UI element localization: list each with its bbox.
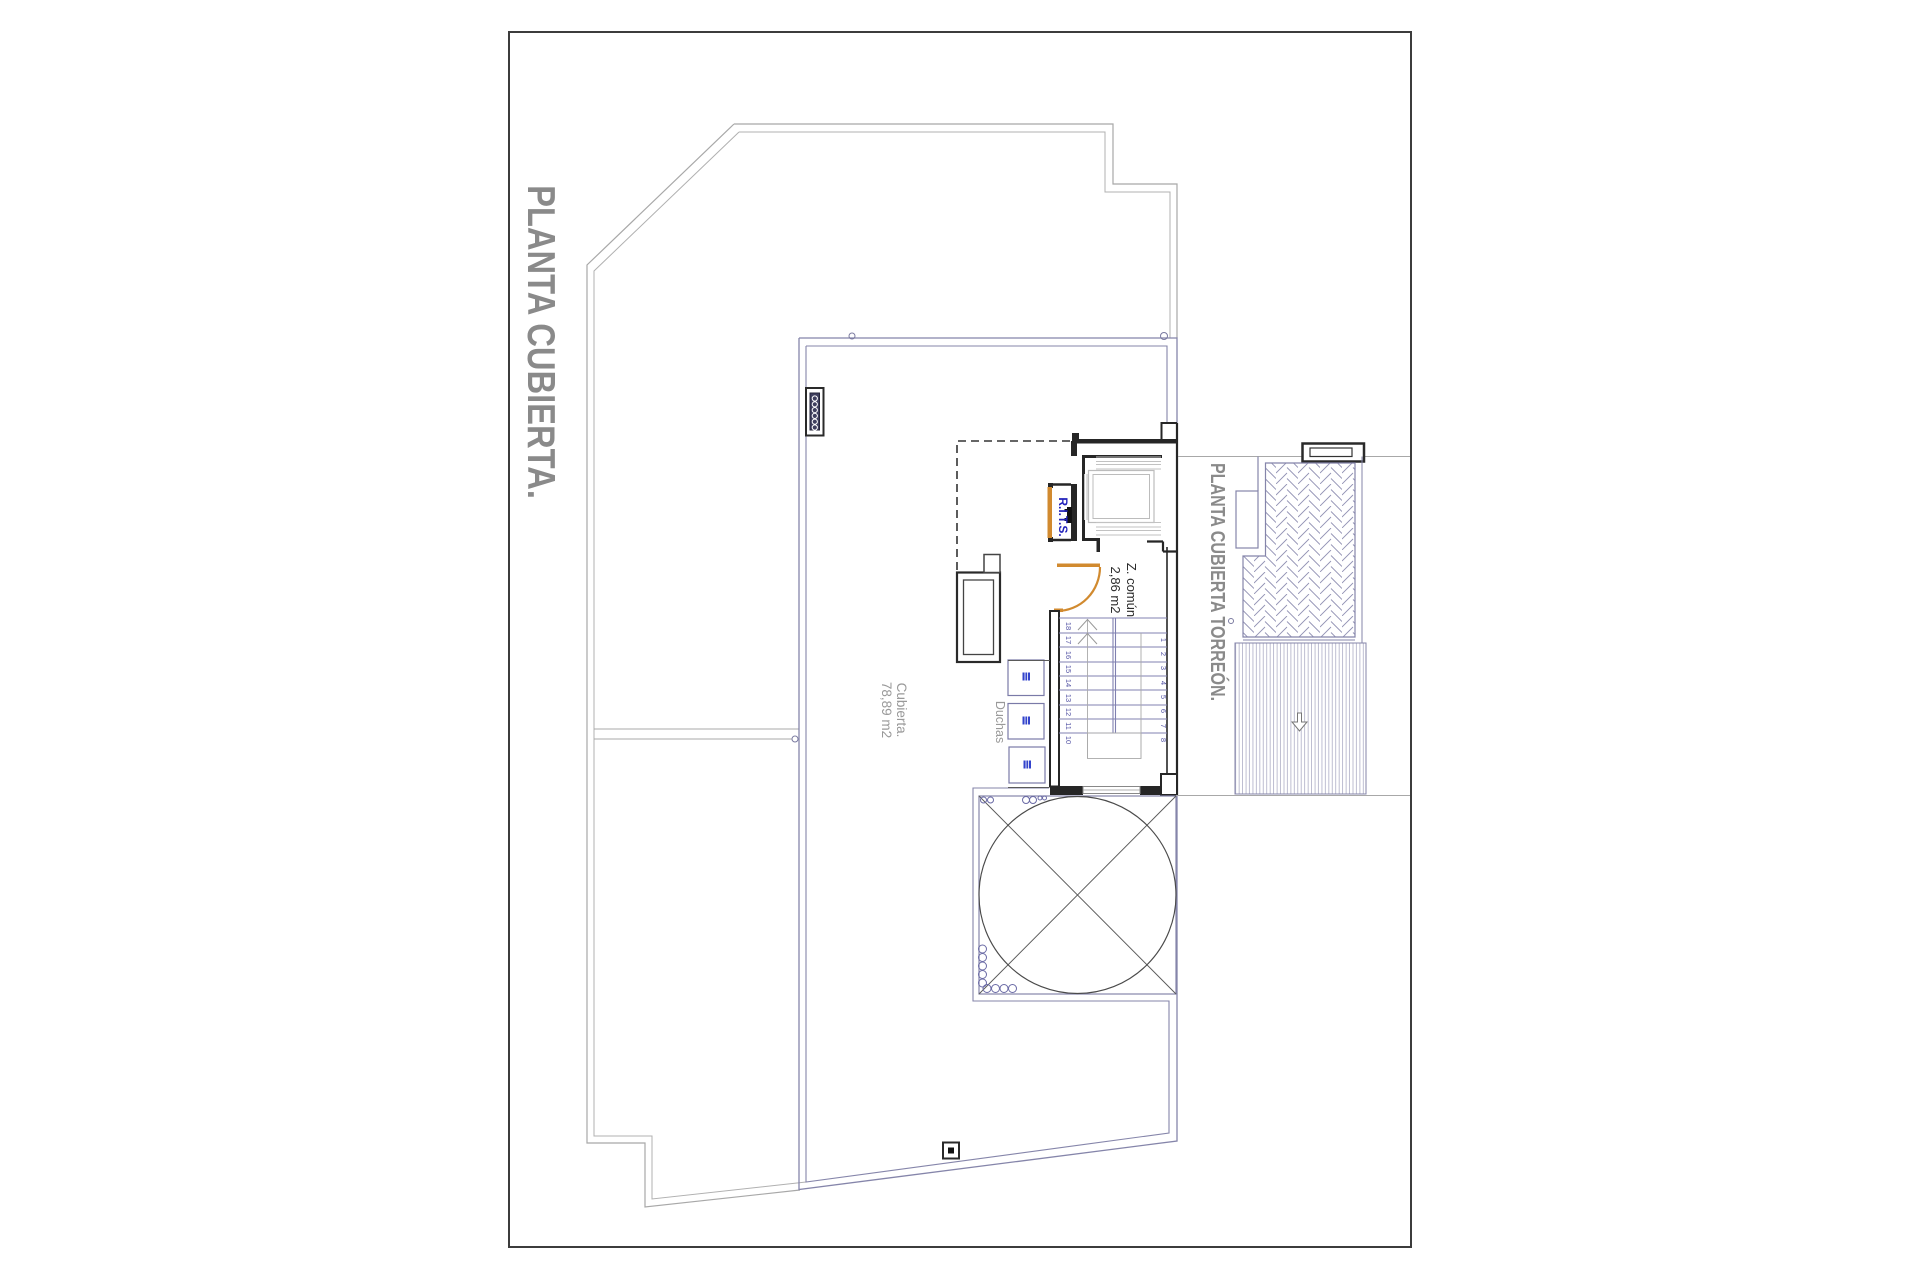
svg-text:Cubierta.: Cubierta. (894, 683, 909, 738)
svg-text:16: 16 (1064, 651, 1073, 659)
svg-text:15: 15 (1064, 665, 1073, 673)
svg-text:3: 3 (1159, 666, 1168, 670)
svg-text:7: 7 (1159, 724, 1168, 728)
svg-text:12: 12 (1064, 708, 1073, 716)
svg-text:78,89 m2: 78,89 m2 (879, 682, 894, 738)
svg-text:8: 8 (1159, 738, 1168, 742)
svg-text:5: 5 (1159, 695, 1168, 699)
svg-text:2: 2 (1159, 652, 1168, 656)
svg-text:13: 13 (1064, 694, 1073, 702)
svg-text:4: 4 (1159, 681, 1168, 685)
svg-text:10: 10 (1064, 736, 1073, 744)
svg-text:18: 18 (1064, 622, 1073, 630)
svg-text:PLANTA CUBIERTA.: PLANTA CUBIERTA. (519, 185, 562, 499)
svg-text:1: 1 (1159, 638, 1168, 642)
svg-text:6: 6 (1159, 709, 1168, 713)
svg-text:14: 14 (1064, 679, 1073, 687)
svg-text:2,86 m2: 2,86 m2 (1108, 567, 1123, 614)
svg-text:PLANTA CUBIERTA TORREÓN.: PLANTA CUBIERTA TORREÓN. (1207, 463, 1230, 701)
svg-text:17: 17 (1064, 636, 1073, 644)
svg-text:Z. común: Z. común (1124, 563, 1139, 617)
svg-text:R.I.T.S.: R.I.T.S. (1056, 497, 1070, 536)
svg-text:11: 11 (1064, 722, 1073, 730)
svg-text:Duchas: Duchas (993, 701, 1007, 743)
